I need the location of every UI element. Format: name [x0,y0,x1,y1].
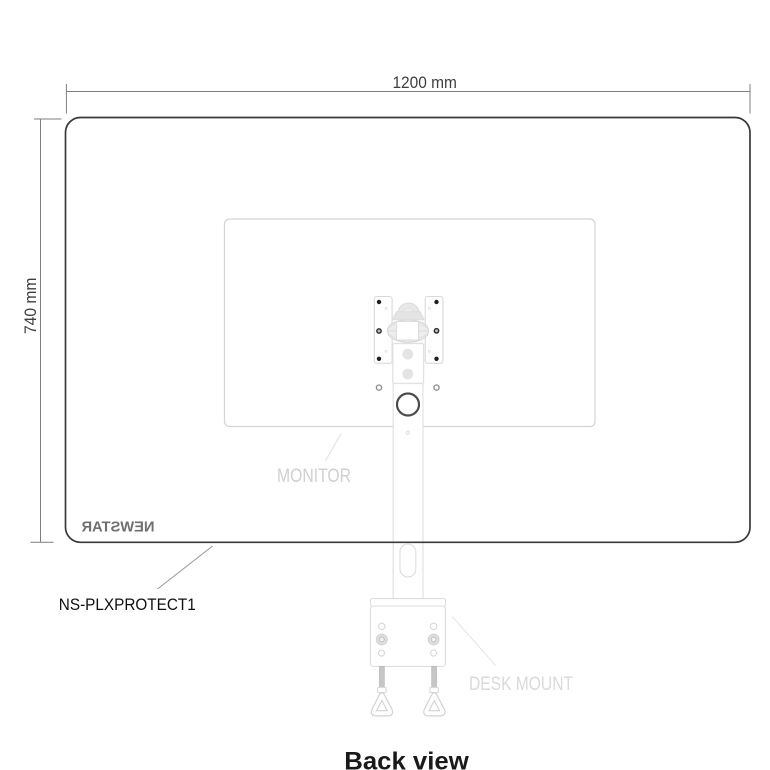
svg-text:DESK MOUNT: DESK MOUNT [469,674,573,695]
svg-text:NS-PLXPROTECT1: NS-PLXPROTECT1 [59,595,196,614]
svg-text:NEWSTAR: NEWSTAR [81,520,155,536]
svg-text:MONITOR: MONITOR [277,466,351,487]
svg-text:1200 mm: 1200 mm [392,74,457,92]
svg-text:Back view: Back view [344,748,469,770]
svg-text:740 mm: 740 mm [21,278,40,335]
